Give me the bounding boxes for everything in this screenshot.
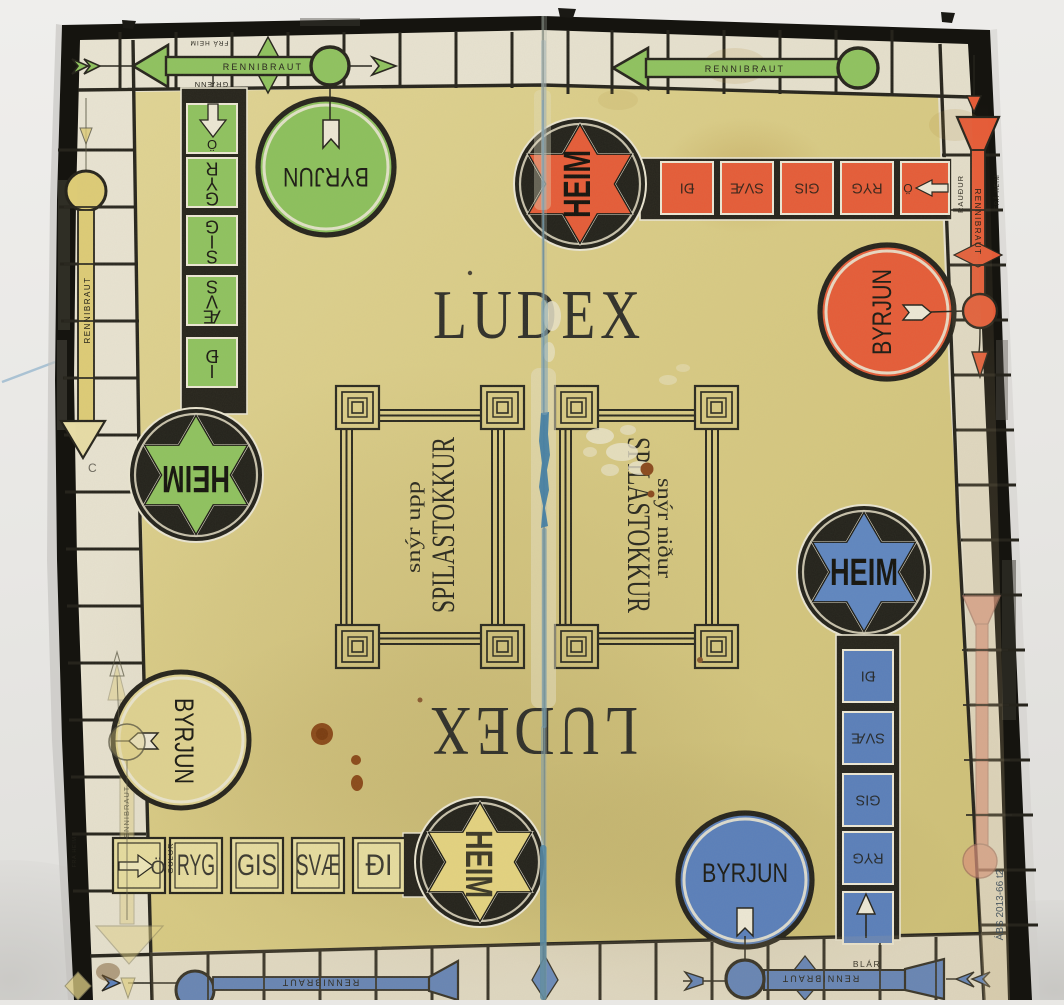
svg-text:FRÁ HEIM: FRÁ HEIM (994, 174, 1001, 209)
svg-text:ÁBS 2013-66 t2: ÁBS 2013-66 t2 (993, 869, 1006, 940)
svg-text:FRÁ HEIM: FRÁ HEIM (71, 836, 78, 867)
